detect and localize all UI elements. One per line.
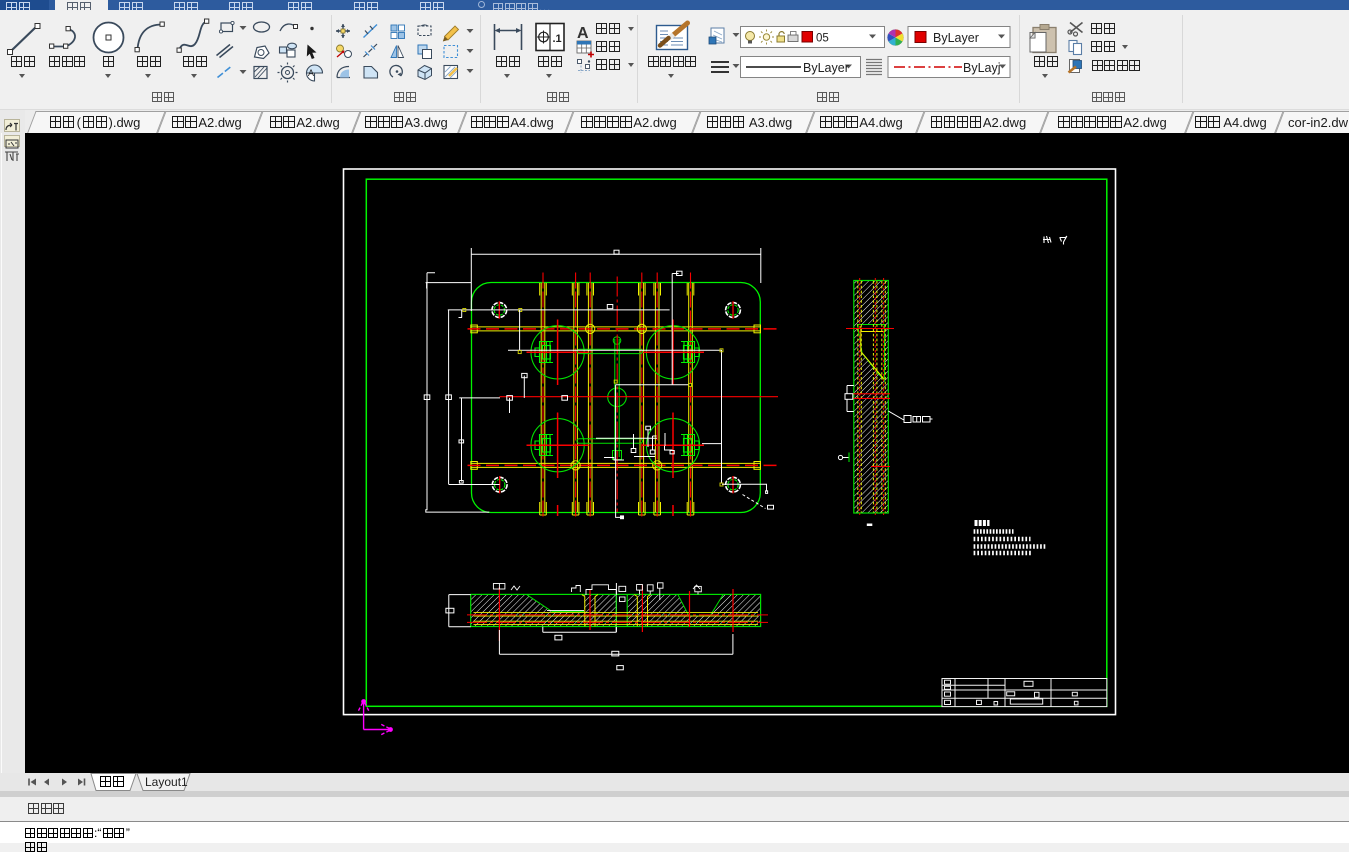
svg-text:A: A <box>577 25 589 42</box>
svg-text:.1: .1 <box>553 33 562 45</box>
svg-text:05: 05 <box>816 33 829 45</box>
svg-text:Layout1: Layout1 <box>145 775 188 789</box>
svg-text:A: A <box>308 68 314 78</box>
svg-text:ByLayј: ByLayј <box>963 61 1001 75</box>
svg-text:ByLayer: ByLayer <box>803 61 849 75</box>
svg-text:ByLayer: ByLayer <box>933 31 979 45</box>
